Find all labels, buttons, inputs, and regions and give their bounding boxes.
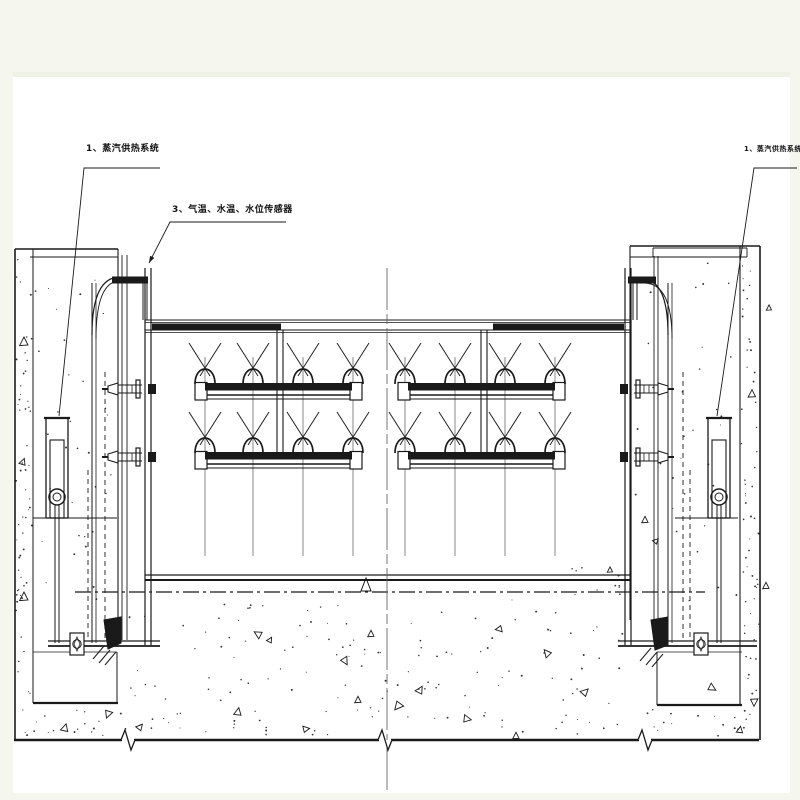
stipple-dot [177, 713, 178, 714]
stipple-dot [28, 509, 29, 510]
stipple-dot [438, 684, 440, 686]
stipple-dot [325, 711, 326, 712]
stipple-dot [552, 678, 553, 679]
stipple-dot [28, 407, 29, 408]
stipple-dot [754, 639, 755, 640]
stipple-dot [397, 684, 399, 686]
stipple-dot [179, 727, 180, 728]
stipple-dot [291, 689, 293, 691]
stipple-dot [20, 394, 21, 395]
stipple-dot [19, 399, 21, 401]
stipple-dot [501, 720, 502, 721]
stipple-dot [247, 607, 249, 609]
stipple-dot [28, 465, 29, 466]
stipple-dot [220, 646, 222, 648]
stipple-dot [151, 727, 153, 729]
stipple-dot [521, 675, 523, 677]
stipple-dot [16, 539, 17, 540]
stipple-dot [20, 385, 21, 386]
stipple-dot [749, 714, 750, 715]
stipple-dot [18, 557, 20, 559]
stipple-dot [129, 617, 131, 619]
stipple-dot [750, 271, 751, 272]
stipple-dot [299, 625, 301, 627]
stipple-dot [608, 703, 609, 704]
stipple-dot [498, 685, 499, 686]
stipple-dot [145, 684, 147, 686]
stipple-dot [72, 502, 73, 503]
stipple-dot [44, 715, 46, 717]
stipple-dot [589, 722, 590, 723]
stipple-dot [744, 633, 746, 635]
stipple-dot [621, 633, 623, 635]
stipple-dot [68, 374, 69, 375]
stipple-dot [234, 724, 235, 725]
stipple-dot [245, 641, 246, 642]
stipple-dot [17, 671, 18, 672]
stipple-dot [18, 524, 19, 525]
stipple-dot [25, 469, 27, 471]
stipple-dot [751, 575, 753, 577]
stipple-dot [699, 368, 700, 369]
steam-header-pipe [628, 277, 656, 284]
stipple-dot [522, 731, 524, 733]
stipple-dot [581, 668, 583, 670]
stipple-dot [240, 679, 242, 681]
stipple-dot [745, 502, 747, 504]
stipple-dot [572, 693, 573, 694]
stipple-dot [750, 657, 752, 659]
drawing-page: 1、蒸汽供热系统 1、蒸汽供热系统 3、气温、水温、水位传感器 [0, 0, 800, 800]
stipple-dot [755, 401, 757, 403]
stipple-dot [205, 632, 206, 633]
stipple-dot [570, 678, 572, 680]
stipple-dot [570, 632, 572, 634]
stipple-dot [29, 507, 31, 509]
stipple-dot [697, 715, 699, 717]
stipple-dot [26, 734, 28, 736]
stipple-dot [18, 589, 19, 590]
stipple-dot [349, 644, 351, 646]
stipple-dot [259, 720, 261, 722]
stipple-dot [734, 717, 735, 718]
stipple-dot [576, 688, 578, 690]
stipple-dot [26, 445, 27, 446]
stipple-dot [436, 656, 438, 658]
stipple-dot [618, 585, 620, 587]
stipple-dot [712, 485, 714, 487]
stipple-dot [135, 695, 136, 696]
stipple-dot [23, 585, 25, 587]
stipple-dot [292, 646, 294, 648]
stipple-dot [120, 713, 122, 715]
stipple-dot [342, 646, 344, 648]
stipple-dot [550, 630, 552, 632]
stipple-dot [744, 479, 746, 481]
stipple-dot [48, 732, 49, 733]
stipple-dot [754, 598, 755, 599]
stipple-dot [280, 668, 281, 669]
stipple-dot [36, 721, 37, 722]
stipple-dot [742, 308, 743, 309]
stipple-dot [756, 427, 757, 428]
stipple-dot [565, 715, 566, 716]
stipple-dot [16, 594, 18, 596]
stipple-dot [327, 734, 328, 735]
stipple-dot [418, 655, 420, 657]
stipple-dot [754, 372, 756, 374]
stipple-dot [717, 735, 719, 737]
stipple-dot [754, 467, 755, 468]
stipple-dot [18, 661, 19, 662]
stipple-dot [755, 690, 757, 692]
stipple-dot [85, 546, 87, 548]
stipple-dot [596, 589, 597, 590]
stipple-dot [93, 728, 95, 730]
stipple-dot [475, 618, 477, 620]
stipple-dot [28, 691, 29, 692]
stipple-dot [720, 425, 721, 426]
stipple-dot [745, 493, 746, 494]
stipple-dot [751, 693, 753, 695]
stipple-dot [583, 654, 585, 656]
stipple-dot [614, 585, 616, 587]
stipple-dot [596, 626, 597, 627]
stipple-dot [152, 718, 154, 720]
drawing-sheet [13, 77, 790, 793]
stipple-dot [577, 733, 579, 735]
stipple-dot [27, 401, 28, 402]
stipple-dot [353, 639, 354, 640]
stipple-dot [424, 688, 426, 690]
steam-header-pipe [493, 324, 624, 331]
stipple-dot [26, 336, 28, 338]
stipple-dot [672, 508, 673, 509]
stipple-dot [180, 713, 181, 714]
stipple-dot [758, 623, 759, 624]
stipple-dot [745, 601, 747, 603]
stipple-dot [420, 640, 422, 642]
stipple-dot [702, 283, 704, 285]
stipple-dot [577, 719, 578, 720]
stipple-dot [670, 713, 672, 715]
stipple-dot [372, 716, 373, 717]
stipple-dot [19, 555, 21, 557]
stipple-dot [555, 612, 557, 614]
gate-edge-pad [620, 452, 628, 462]
stipple-dot [349, 656, 350, 657]
stipple-dot [717, 587, 719, 589]
stipple-dot [750, 349, 752, 351]
stipple-dot [650, 291, 652, 293]
stipple-dot [361, 665, 363, 667]
stipple-dot [511, 599, 512, 600]
stipple-dot [57, 411, 59, 413]
stipple-dot [20, 577, 21, 578]
stipple-dot [137, 670, 138, 671]
stipple-dot [603, 727, 605, 729]
stipple-dot [102, 735, 103, 736]
stipple-dot [756, 451, 757, 452]
stipple-dot [716, 409, 718, 411]
stipple-dot [411, 623, 412, 624]
stipple-dot [378, 710, 379, 711]
stipple-dot [77, 447, 79, 449]
stipple-dot [647, 712, 649, 714]
stipple-dot [748, 550, 750, 552]
stipple-dot [491, 637, 493, 639]
stipple-dot [103, 313, 104, 314]
stipple-dot [84, 711, 85, 712]
stipple-dot [233, 720, 235, 722]
spray-pipe [408, 383, 555, 391]
stipple-dot [163, 718, 164, 719]
stipple-dot [420, 647, 421, 648]
stipple-dot [23, 548, 25, 550]
stipple-dot [194, 648, 195, 649]
stipple-dot [29, 693, 30, 694]
stipple-dot [535, 611, 537, 613]
stipple-dot [228, 637, 230, 639]
stipple-dot [262, 605, 263, 606]
stipple-dot [707, 262, 709, 264]
stipple-dot [79, 293, 81, 295]
stipple-dot [676, 531, 678, 533]
stipple-dot [25, 517, 27, 519]
stipple-dot [20, 470, 22, 472]
stipple-dot [336, 654, 337, 655]
stipple-dot [749, 538, 750, 539]
stipple-dot [749, 285, 751, 287]
stipple-dot [697, 551, 699, 553]
stipple-dot [168, 722, 169, 723]
stipple-dot [434, 718, 435, 719]
stipple-dot [748, 338, 750, 340]
stipple-dot [23, 651, 24, 652]
stipple-dot [480, 651, 481, 652]
stipple-dot [22, 516, 23, 517]
stipple-dot [618, 667, 620, 669]
stipple-dot [742, 316, 744, 318]
stipple-dot [755, 658, 757, 660]
stipple-dot [593, 630, 594, 631]
stipple-dot [30, 410, 32, 412]
stipple-dot [20, 281, 21, 282]
stipple-dot [88, 452, 90, 454]
stipple-dot [208, 677, 209, 678]
stipple-dot [377, 652, 379, 654]
stipple-dot [46, 582, 47, 583]
label-steam-system-right: 1、蒸汽供热系统 [744, 144, 800, 153]
stipple-dot [754, 517, 756, 519]
stipple-dot [107, 414, 108, 415]
stipple-dot [435, 687, 437, 689]
stipple-dot [35, 290, 37, 292]
stipple-dot [17, 590, 18, 591]
stipple-dot [464, 695, 466, 697]
stipple-dot [728, 282, 730, 284]
stipple-dot [29, 498, 30, 499]
stipple-dot [77, 729, 78, 730]
stipple-dot [555, 728, 556, 729]
stipple-dot [734, 727, 736, 729]
stipple-dot [306, 636, 307, 637]
stipple-dot [746, 298, 748, 300]
stipple-dot [16, 276, 18, 278]
stipple-dot [598, 657, 600, 659]
stipple-dot [746, 367, 747, 368]
stipple-dot [53, 730, 54, 731]
stipple-dot [370, 707, 371, 708]
stipple-dot [98, 721, 99, 722]
stipple-dot [364, 649, 366, 651]
stipple-dot [671, 723, 672, 724]
stipple-dot [250, 604, 252, 606]
stipple-dot [745, 557, 747, 559]
stipple-dot [314, 730, 315, 731]
stipple-dot [477, 672, 478, 673]
stipple-dot [31, 338, 33, 340]
stipple-dot [130, 687, 132, 689]
stipple-dot [619, 587, 620, 588]
stipple-dot [502, 677, 503, 678]
gate-edge-pad [620, 384, 628, 394]
stipple-dot [746, 349, 748, 351]
stipple-dot [758, 533, 759, 534]
stipple-dot [220, 699, 222, 701]
stipple-dot [312, 734, 314, 736]
spray-pipe [205, 452, 352, 460]
stipple-dot [30, 294, 32, 296]
gate-edge-pad [148, 452, 156, 462]
stipple-dot [218, 617, 220, 619]
stipple-dot [74, 731, 76, 733]
stipple-dot [744, 710, 746, 712]
stipple-dot [575, 570, 576, 571]
stipple-dot [702, 347, 703, 348]
stipple-dot [756, 587, 757, 588]
stipple-dot [56, 309, 57, 310]
stipple-dot [24, 352, 25, 353]
stipple-dot [571, 568, 573, 570]
stipple-dot [82, 381, 83, 382]
stipple-dot [756, 579, 757, 580]
stipple-dot [652, 709, 654, 711]
stipple-dot [515, 619, 516, 620]
stipple-dot [76, 710, 77, 711]
stipple-dot [337, 605, 338, 606]
stipple-dot [748, 674, 750, 676]
stipple-dot [247, 682, 249, 684]
stipple-dot [741, 408, 743, 410]
stipple-dot [254, 711, 255, 712]
stipple-dot [320, 606, 321, 607]
stipple-dot [684, 493, 686, 495]
stipple-dot [680, 458, 681, 459]
stipple-dot [637, 428, 639, 430]
gate-heating-system-drawing: 1、蒸汽供热系统 1、蒸汽供热系统 3、气温、水温、水位传感器 [0, 0, 800, 800]
stipple-dot [451, 653, 452, 654]
stipple-dot [154, 685, 156, 687]
stipple-dot [284, 650, 285, 651]
stipple-dot [743, 289, 745, 291]
stipple-dot [337, 697, 338, 698]
stipple-dot [441, 611, 443, 613]
stipple-dot [743, 519, 745, 521]
stipple-dot [357, 710, 358, 711]
stipple-dot [483, 715, 485, 717]
stipple-dot [47, 433, 49, 435]
stipple-dot [364, 654, 365, 655]
stipple-dot [714, 716, 715, 717]
stipple-dot [743, 278, 744, 279]
stipple-dot [22, 462, 23, 463]
stipple-dot [730, 356, 732, 358]
spray-pipe [205, 383, 352, 391]
stipple-dot [84, 723, 86, 725]
stipple-dot [25, 408, 27, 410]
stipple-dot [84, 536, 85, 537]
stipple-dot [165, 698, 167, 700]
stipple-dot [233, 657, 234, 658]
stipple-dot [182, 625, 184, 627]
stipple-dot [619, 593, 621, 595]
stipple-dot [382, 698, 384, 700]
stipple-dot [561, 722, 563, 724]
stipple-dot [26, 582, 28, 584]
stipple-dot [78, 535, 80, 537]
stipple-dot [65, 447, 67, 449]
stipple-dot [745, 656, 747, 658]
stipple-dot [249, 607, 251, 609]
stipple-dot [469, 707, 470, 708]
stipple-dot [306, 672, 307, 673]
stipple-dot [743, 727, 745, 729]
stipple-dot [501, 726, 502, 727]
stipple-dot [21, 636, 22, 637]
stipple-dot [70, 421, 71, 422]
stipple-dot [750, 613, 751, 614]
stipple-dot [574, 594, 575, 595]
stipple-dot [741, 443, 742, 444]
stipple-dot [446, 651, 448, 653]
stipple-dot [205, 731, 206, 732]
stipple-dot [745, 718, 746, 719]
stipple-dot [22, 532, 23, 533]
stipple-dot [617, 724, 618, 725]
stipple-dot [695, 287, 697, 289]
stipple-dot [310, 621, 312, 623]
stipple-dot [23, 373, 25, 375]
stipple-dot [743, 571, 745, 573]
stipple-dot [407, 716, 408, 717]
stipple-dot [487, 647, 489, 649]
stipple-dot [635, 494, 637, 496]
stipple-dot [26, 360, 27, 361]
stipple-dot [754, 585, 756, 587]
stipple-dot [105, 493, 106, 494]
stipple-dot [447, 717, 449, 719]
stipple-dot [562, 699, 564, 701]
stipple-dot [380, 652, 381, 653]
stipple-dot [233, 727, 234, 728]
stipple-dot [742, 265, 743, 266]
stipple-dot [385, 680, 387, 682]
stipple-dot [93, 586, 95, 588]
stipple-dot [42, 541, 43, 542]
stipple-dot [683, 435, 684, 436]
stipple-dot [265, 727, 267, 729]
